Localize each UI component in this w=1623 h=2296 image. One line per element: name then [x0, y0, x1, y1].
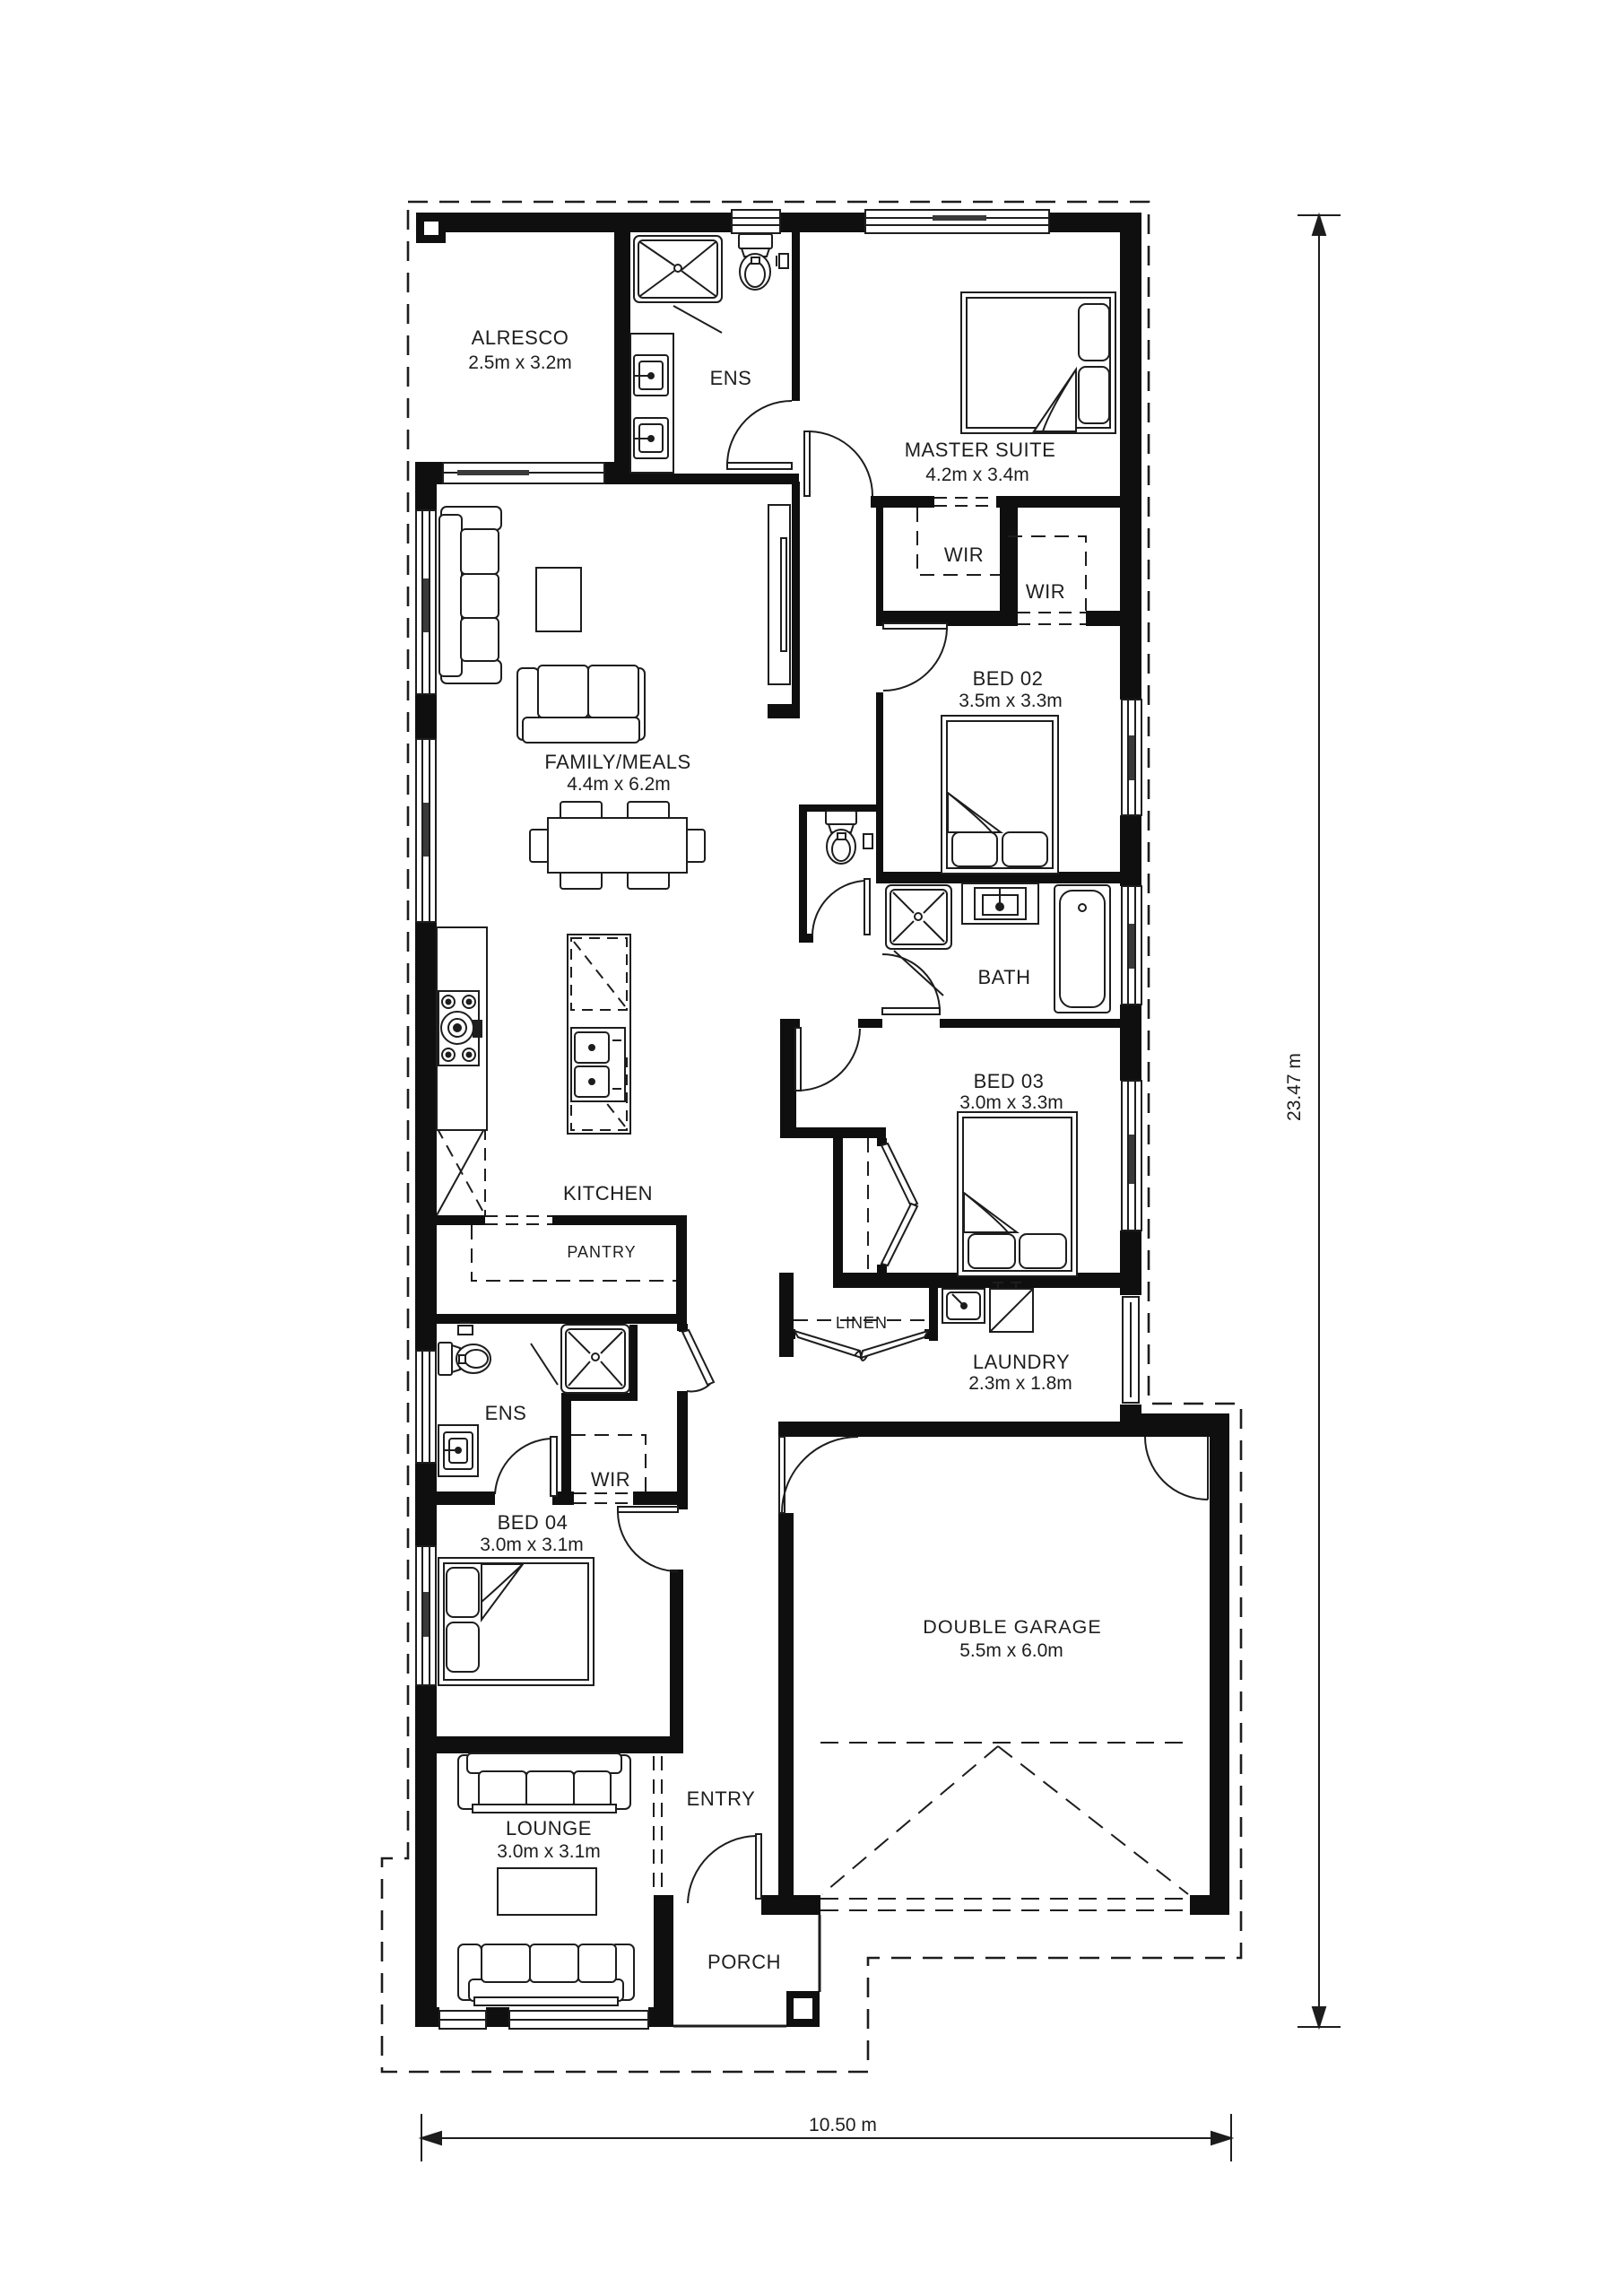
- svg-text:LAUNDRY: LAUNDRY: [973, 1351, 1070, 1373]
- svg-text:PANTRY: PANTRY: [567, 1243, 636, 1261]
- svg-text:4.2m x 3.4m: 4.2m x 3.4m: [925, 465, 1029, 485]
- svg-text:10.50 m: 10.50 m: [809, 2115, 877, 2135]
- svg-text:3.0m x 3.3m: 3.0m x 3.3m: [959, 1092, 1063, 1113]
- svg-text:DOUBLE GARAGE: DOUBLE GARAGE: [923, 1616, 1101, 1638]
- svg-text:BED 04: BED 04: [498, 1511, 568, 1534]
- svg-text:WIR: WIR: [591, 1468, 630, 1491]
- svg-text:PORCH: PORCH: [707, 1951, 781, 1973]
- svg-text:BED 03: BED 03: [974, 1070, 1045, 1092]
- svg-text:LINEN: LINEN: [836, 1314, 888, 1332]
- svg-text:3.0m x 3.1m: 3.0m x 3.1m: [497, 1841, 601, 1862]
- svg-text:ENTRY: ENTRY: [687, 1787, 756, 1810]
- svg-text:FAMILY/MEALS: FAMILY/MEALS: [544, 751, 690, 773]
- svg-text:KITCHEN: KITCHEN: [563, 1182, 653, 1205]
- svg-text:BED 02: BED 02: [973, 667, 1044, 690]
- svg-text:LOUNGE: LOUNGE: [506, 1817, 592, 1839]
- svg-text:MASTER SUITE: MASTER SUITE: [905, 439, 1056, 461]
- svg-text:ENS: ENS: [485, 1402, 527, 1424]
- svg-text:WIR: WIR: [1026, 580, 1065, 603]
- svg-text:4.4m x 6.2m: 4.4m x 6.2m: [567, 774, 671, 795]
- svg-text:ENS: ENS: [710, 367, 752, 389]
- svg-text:WIR: WIR: [944, 544, 984, 566]
- svg-text:3.0m x 3.1m: 3.0m x 3.1m: [480, 1535, 584, 1555]
- svg-text:5.5m x 6.0m: 5.5m x 6.0m: [959, 1640, 1063, 1661]
- svg-text:ALRESCO: ALRESCO: [472, 326, 569, 349]
- svg-text:2.5m x 3.2m: 2.5m x 3.2m: [468, 352, 572, 373]
- svg-text:2.3m x 1.8m: 2.3m x 1.8m: [968, 1373, 1072, 1394]
- svg-text:23.47 m: 23.47 m: [1284, 1053, 1305, 1121]
- svg-text:BATH: BATH: [977, 966, 1030, 988]
- svg-text:3.5m x 3.3m: 3.5m x 3.3m: [959, 691, 1063, 711]
